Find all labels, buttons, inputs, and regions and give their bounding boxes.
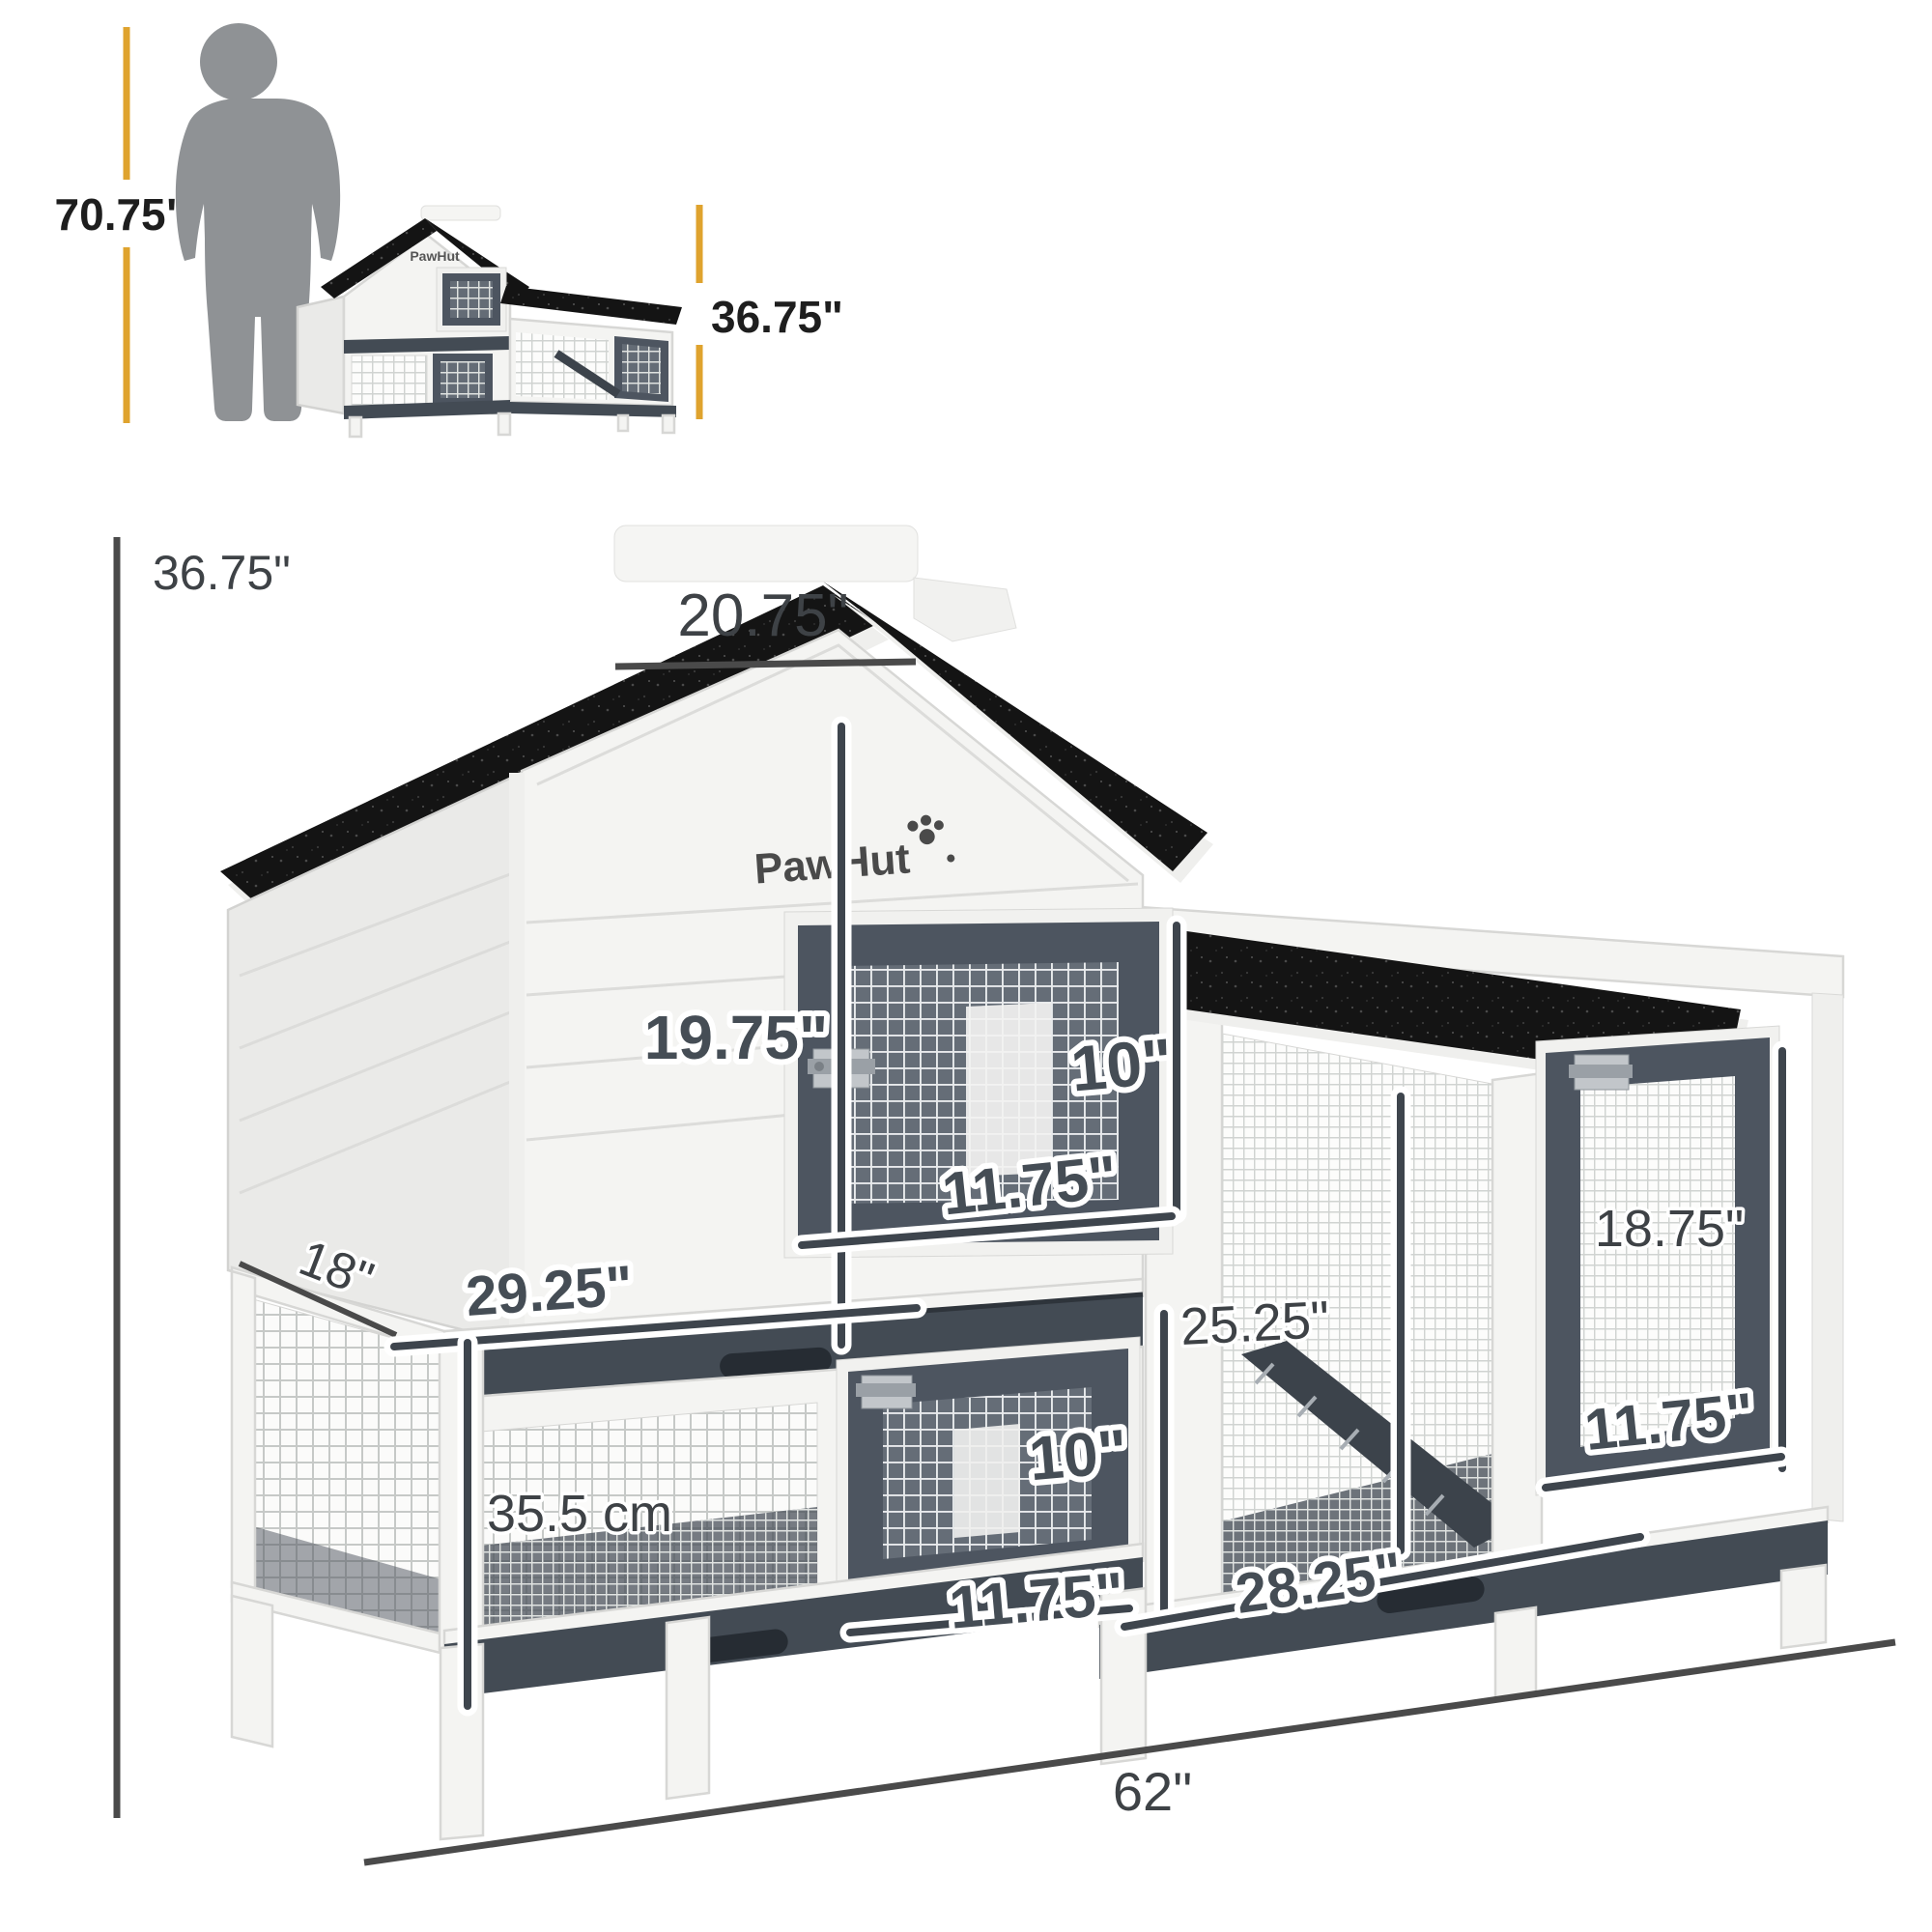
mini-run-roof xyxy=(500,286,682,325)
upper-door-height-label: 10" xyxy=(1068,1025,1176,1105)
mini-logo-text: PawHut xyxy=(410,248,460,264)
mini-run-mesh xyxy=(516,332,609,400)
overall-width-label: 62" xyxy=(1113,1761,1192,1822)
mini-lower-mesh xyxy=(352,355,427,406)
silhouette-head xyxy=(200,23,277,100)
overall-height-label: 36.75" xyxy=(153,546,291,600)
person-height-label: 70.75" xyxy=(55,189,187,240)
diagram-canvas: 70.75" PawHut xyxy=(0,0,1932,1932)
mini-leg xyxy=(498,413,510,435)
ridge-cap-end xyxy=(914,578,1016,641)
roof-top-width-label: 20.75" xyxy=(677,582,848,649)
run-mid-post xyxy=(1492,1073,1542,1563)
front-corner-trim xyxy=(509,773,525,1345)
thumbnail-height-label: 36.75" xyxy=(711,292,843,342)
run-door-latch-icon xyxy=(1569,1055,1633,1090)
scale-reference-group: 70.75" PawHut xyxy=(55,23,843,437)
mini-upper-door-mesh-lines xyxy=(450,281,493,318)
run-right-leg xyxy=(1781,1565,1826,1648)
mini-lower-door-mesh-lines xyxy=(440,361,485,398)
side-rear-post xyxy=(232,1271,255,1594)
mini-ridge-cap xyxy=(421,206,500,220)
mini-leg xyxy=(663,415,674,433)
run-mid-leg xyxy=(1495,1607,1536,1698)
upper-level-height-label: 19.75" xyxy=(644,1003,829,1072)
lower-height-label: 35.5 cm xyxy=(487,1485,672,1543)
run-door-height-label: 18.75" xyxy=(1595,1200,1744,1258)
mini-leg xyxy=(618,415,628,431)
front-mid-leg xyxy=(667,1617,709,1799)
rear-left-leg xyxy=(232,1596,272,1747)
house-width-label: 29.25" xyxy=(464,1254,635,1328)
lower-inner-door xyxy=(954,1424,1020,1538)
run-height-label: 25.25" xyxy=(1179,1291,1330,1356)
lower-door-latch-icon xyxy=(856,1376,916,1408)
run-rear-right-post xyxy=(1812,993,1843,1521)
thumbnail-hutch: PawHut xyxy=(298,206,682,437)
product-dimension-diagram: 70.75" PawHut xyxy=(0,0,1932,1932)
ridge-cap xyxy=(614,526,918,582)
mini-leg xyxy=(350,417,361,437)
mini-side-wall xyxy=(298,297,344,413)
lower-door-height-label: 10" xyxy=(1026,1416,1129,1494)
roof-top-width-line xyxy=(615,662,916,667)
mini-run-door-mesh-lines xyxy=(622,344,661,394)
